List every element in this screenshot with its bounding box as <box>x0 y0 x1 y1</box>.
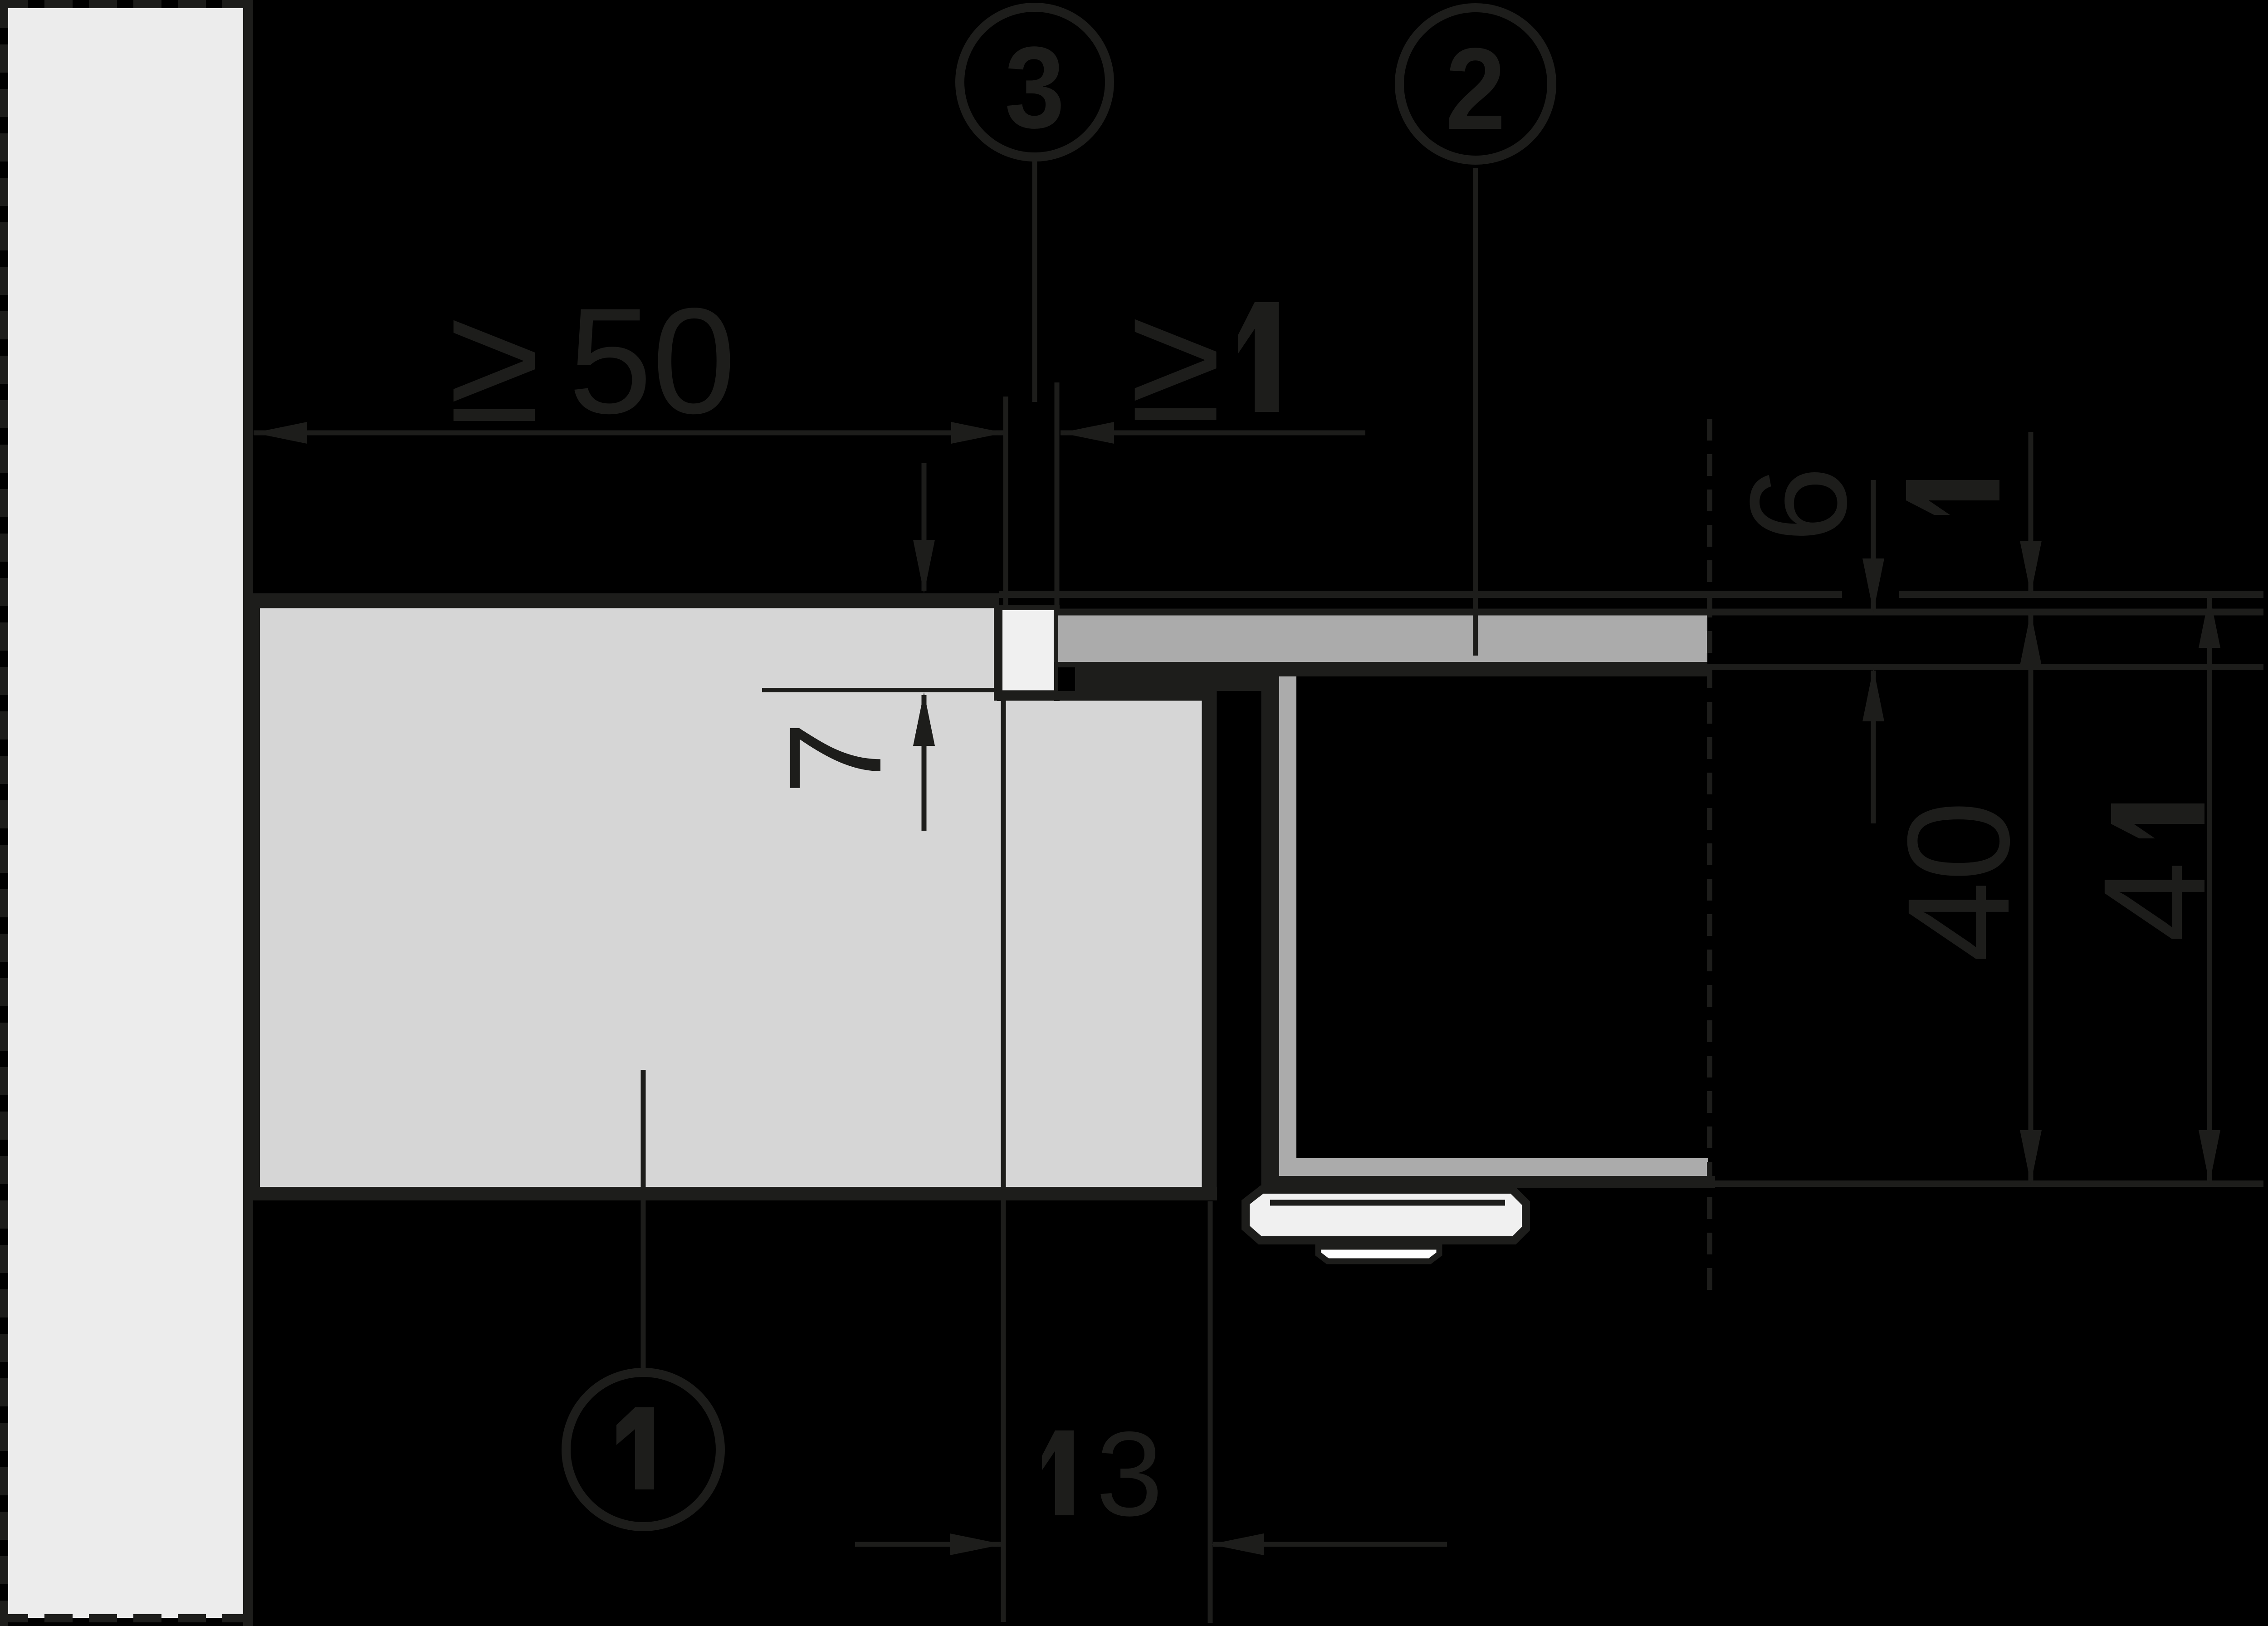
svg-text:6: 6 <box>1722 466 1875 543</box>
svg-text:3: 3 <box>1005 23 1065 152</box>
svg-text:4: 4 <box>2073 862 2235 942</box>
svg-text:≥: ≥ <box>448 269 540 457</box>
svg-text:≥: ≥ <box>1129 269 1222 456</box>
svg-text:2: 2 <box>1446 24 1505 154</box>
svg-text:3: 3 <box>1096 1407 1163 1541</box>
svg-text:40: 40 <box>1877 801 2039 962</box>
svg-text:7: 7 <box>762 721 909 794</box>
svg-text:50: 50 <box>568 277 736 445</box>
